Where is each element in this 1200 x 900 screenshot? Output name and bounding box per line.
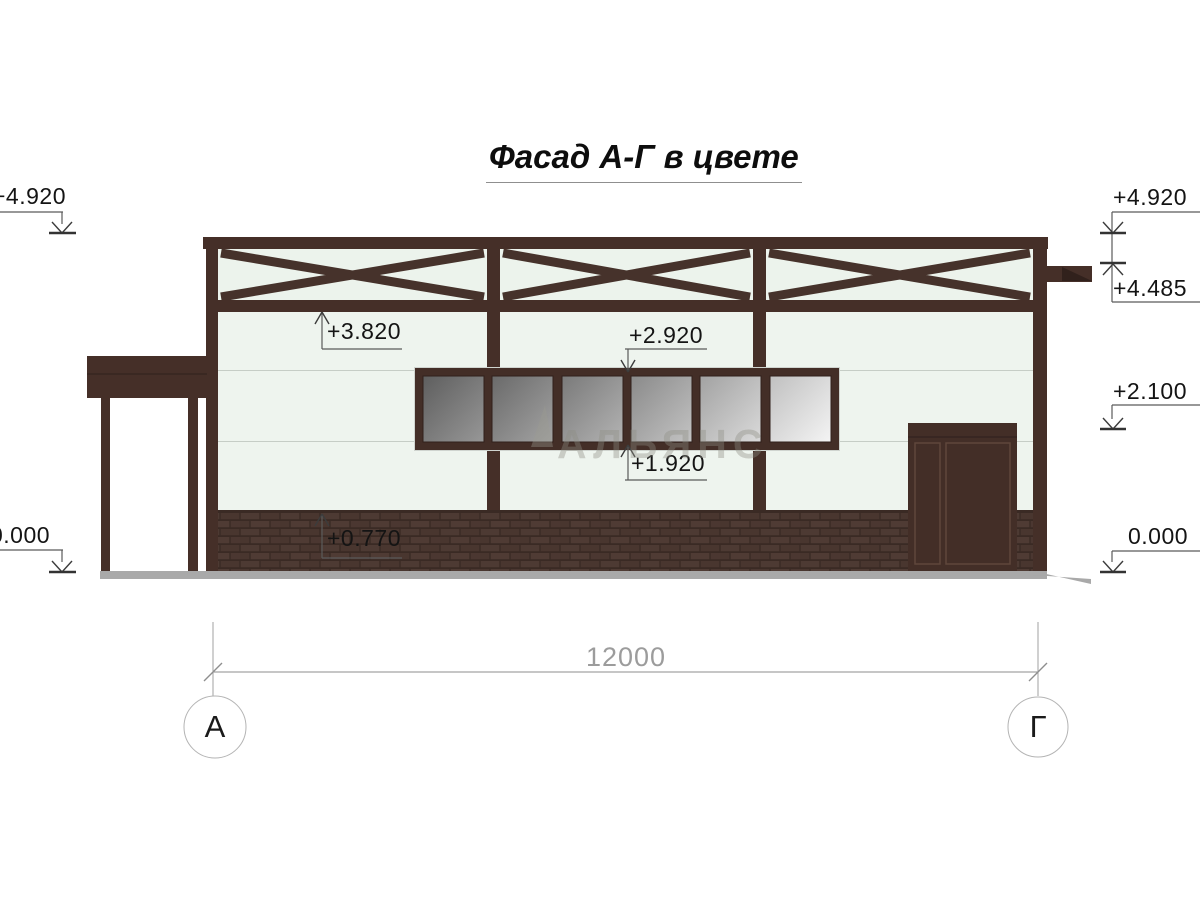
- axis-label-g: Г: [1008, 711, 1068, 742]
- elevation-label-truss-bottom: +3.820: [327, 320, 401, 343]
- elevation-label-window-top: +2.920: [629, 324, 703, 347]
- elevation-label-left-top: +4.920: [0, 185, 63, 208]
- canopy-post: [188, 398, 198, 571]
- elevation-label-right-zero: 0.000: [1128, 525, 1188, 548]
- ground-line: [100, 571, 1091, 584]
- right-corner-post: [1033, 245, 1047, 571]
- overall-dimension-label: 12000: [576, 642, 676, 673]
- canopy-fascia: [87, 356, 207, 398]
- entrance-door: [908, 423, 1017, 571]
- axis-label-a: А: [184, 711, 246, 742]
- elevation-label-right-cornice: +4.485: [1113, 277, 1187, 300]
- door-frame: [908, 423, 1017, 571]
- elevation-label-left-zero: 0.000: [0, 524, 48, 547]
- watermark-text: АЛЬЯНС: [557, 421, 768, 468]
- truss-bottom-chord: [206, 300, 1047, 312]
- elevation-label-right-lintel: +2.100: [1113, 380, 1187, 403]
- elevation-label-right-top: +4.920: [1113, 186, 1187, 209]
- drawing-title: Фасад А-Г в цвете: [486, 138, 802, 183]
- canopy-post: [101, 398, 110, 571]
- truss-top-chord: [203, 237, 1048, 249]
- elevation-label-plinth-top: +0.770: [327, 527, 401, 550]
- facade-drawing-sheet: Фасад А-Г в цвете +4.920 0.000 +4.920 +4…: [0, 0, 1200, 900]
- left-corner-post: [206, 245, 218, 571]
- cantilever-beam: [1047, 266, 1092, 282]
- entrance-canopy: [87, 356, 207, 571]
